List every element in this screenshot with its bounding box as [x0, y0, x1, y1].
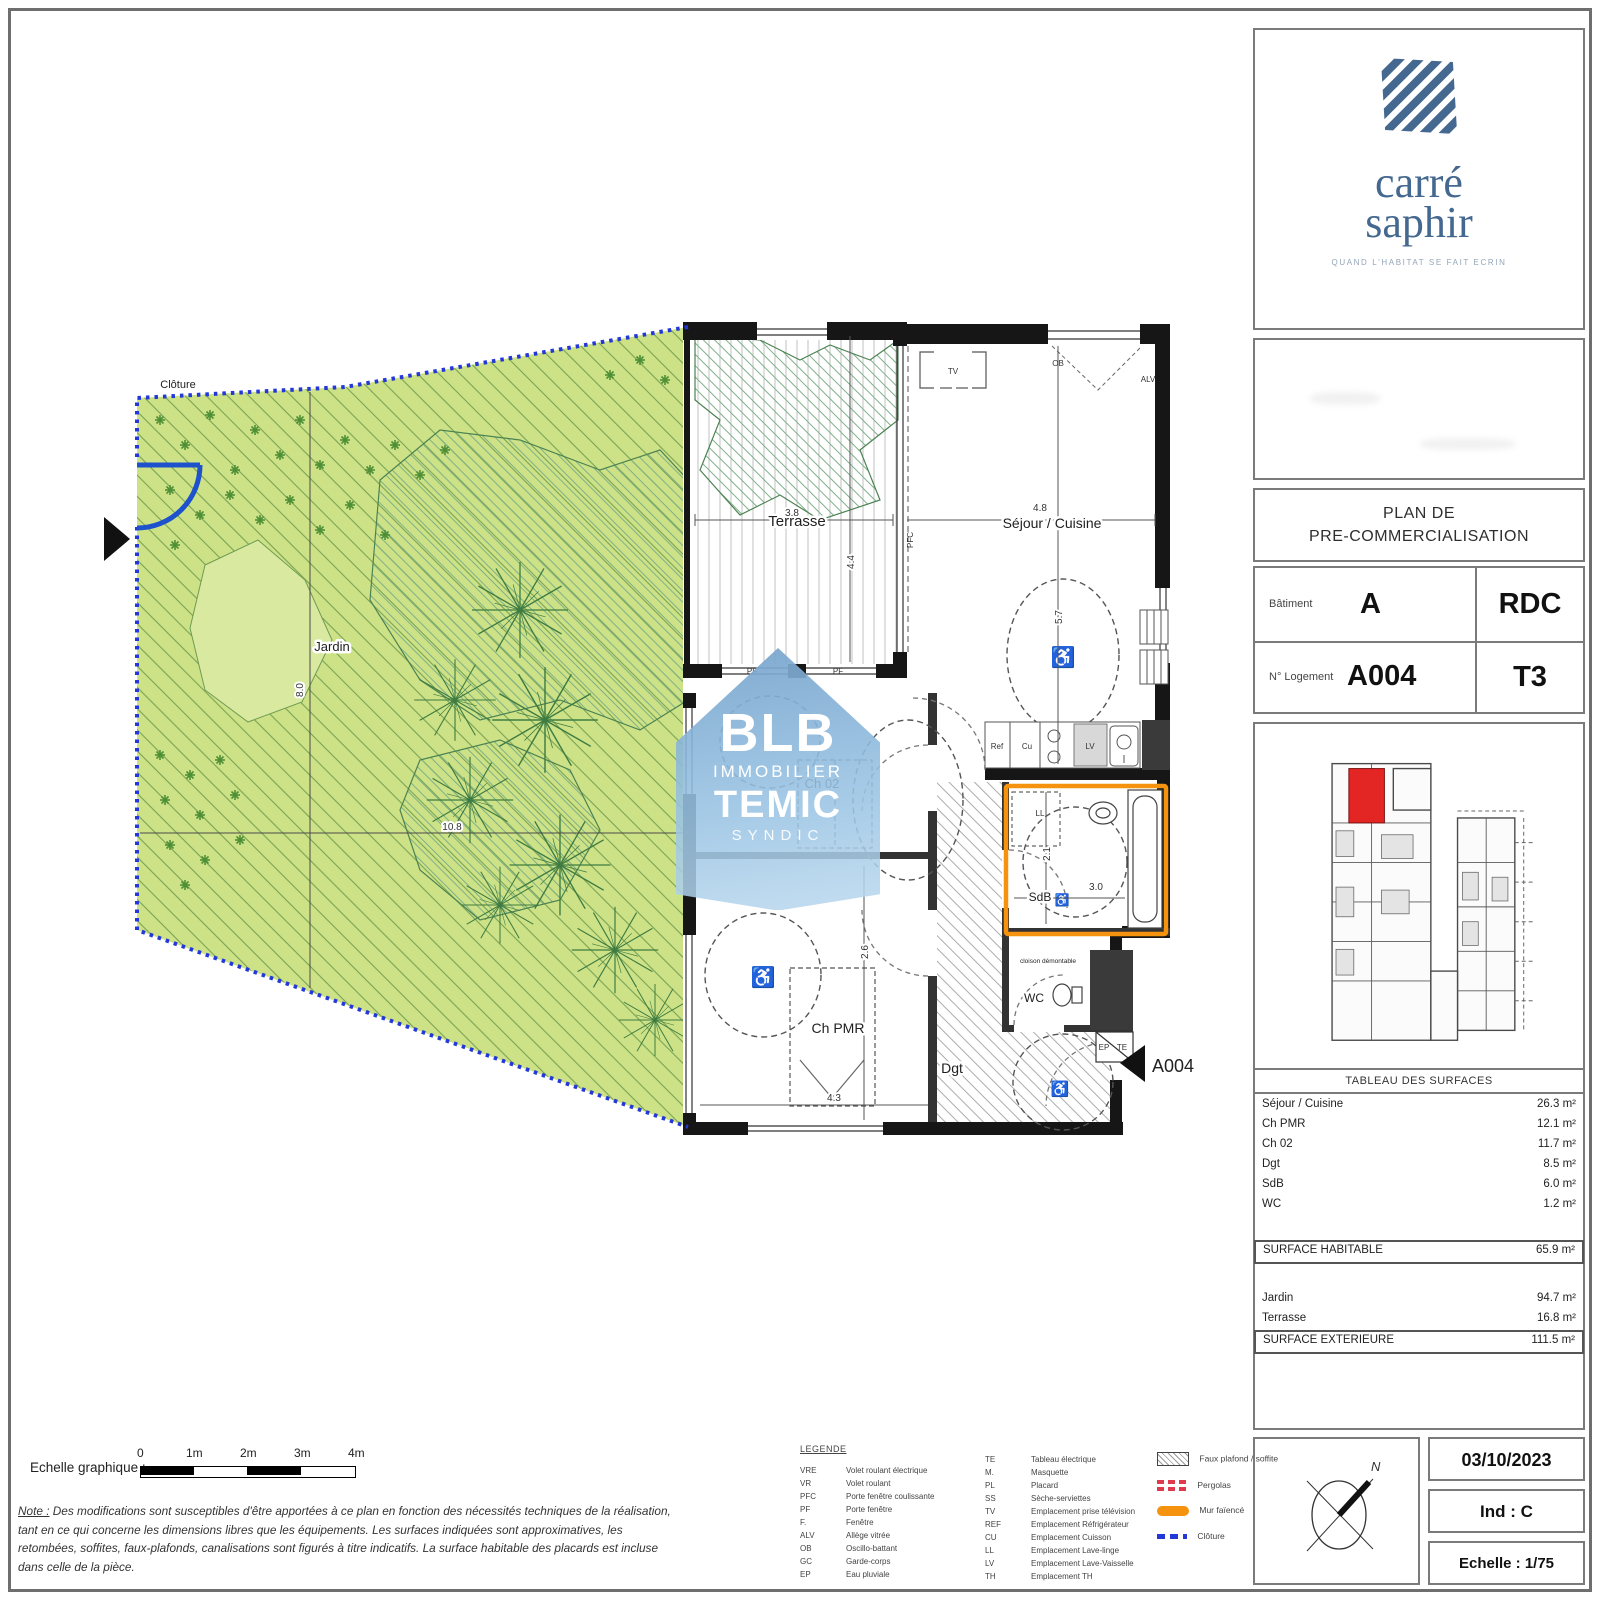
legend-label: Emplacement TH: [1031, 1572, 1093, 1581]
label-jardin: Jardin: [314, 639, 349, 654]
legend-abbr: EP: [800, 1570, 846, 1579]
legend-row: VREVolet roulant électrique: [800, 1466, 927, 1475]
fixture-pf-2: PF: [833, 667, 843, 676]
faded-text: [1310, 392, 1380, 405]
pergolas-icon: [1157, 1480, 1187, 1491]
scalebar-tick: 3m: [294, 1446, 311, 1460]
svg-text:♿: ♿: [1055, 893, 1070, 907]
note-body: Des modifications sont susceptibles d'êt…: [18, 1504, 671, 1574]
watermark-line: BLB: [676, 706, 880, 760]
legend-abbr: LV: [985, 1559, 1031, 1568]
svg-text:♿: ♿: [751, 965, 776, 989]
row-value: 12.1 m²: [1537, 1118, 1576, 1130]
legend-row: LVEmplacement Lave-Vaisselle: [985, 1559, 1134, 1568]
legend-label: Sèche-serviettes: [1031, 1494, 1091, 1503]
watermark-line: IMMOBILIER: [676, 762, 880, 782]
legend-label: Volet roulant électrique: [846, 1466, 927, 1475]
fixture-ob: OB: [1052, 359, 1064, 368]
surface-table: TABLEAU DES SURFACES Séjour / Cuisine26.…: [1253, 1068, 1585, 1430]
table-row: SdB6.0 m²: [1255, 1176, 1583, 1196]
compass-icon: N: [1255, 1439, 1418, 1583]
date-value: 03/10/2023: [1461, 1450, 1551, 1470]
watermark-line: TEMIC: [676, 786, 880, 824]
surface-habitable-row: SURFACE HABITABLE65.9 m²: [1254, 1240, 1584, 1264]
legend-row: PLPlacard: [985, 1481, 1058, 1490]
terrace-canopy: [695, 335, 898, 520]
legend-abbr: M.: [985, 1468, 1031, 1477]
row-label: Dgt: [1262, 1158, 1280, 1170]
legend-row: F.Fenêtre: [800, 1518, 874, 1527]
legend-label: Garde-corps: [846, 1557, 890, 1566]
floor-plan: ♿ ♿ ♿ ♿: [0, 0, 1245, 1600]
legend-abbr: PFC: [800, 1492, 846, 1501]
row-label: SdB: [1262, 1178, 1284, 1190]
address-block: [1253, 338, 1585, 480]
surface-table-title: TABLEAU DES SURFACES: [1255, 1070, 1583, 1094]
legend-label: Faux plafond / soffite: [1199, 1453, 1278, 1463]
label-cloture: Clôture: [160, 379, 195, 391]
surface-exterieure-row: SURFACE EXTERIEURE111.5 m²: [1254, 1330, 1584, 1354]
logo-word-top: carré: [1255, 163, 1583, 203]
legend-row: TVEmplacement prise télévision: [985, 1507, 1135, 1516]
note-text: Note : Des modifications sont susceptibl…: [18, 1502, 673, 1577]
legend-abbr: F.: [800, 1518, 846, 1527]
legend-row: LLEmplacement Lave-linge: [985, 1546, 1119, 1555]
legend-symbol-row: Faux plafond / soffite: [1157, 1452, 1278, 1466]
scale-stamp: Echelle : 1/75: [1428, 1541, 1585, 1585]
table-row: Ch 0211.7 m²: [1255, 1136, 1583, 1156]
legend-label: Tableau électrique: [1031, 1455, 1096, 1464]
dim-jardin-h: 8.0: [295, 683, 306, 697]
legend-abbr: LL: [985, 1546, 1031, 1555]
scale-value: Echelle : 1/75: [1459, 1555, 1554, 1572]
label-dgt: Dgt: [941, 1060, 963, 1076]
dim-jardin-w: 10.8: [442, 822, 462, 833]
fixture-te: TE: [1117, 1043, 1127, 1052]
legend-row: CUEmplacement Cuisson: [985, 1533, 1111, 1542]
row-value: 65.9 m²: [1536, 1244, 1575, 1256]
table-row: Jardin94.7 m²: [1255, 1290, 1583, 1310]
fixture-alv: ALV: [1141, 375, 1156, 384]
unit-label: A004: [1152, 1056, 1194, 1076]
dim-terrasse-h: 4.4: [846, 555, 857, 569]
row-value: 6.0 m²: [1543, 1178, 1576, 1190]
legend-row: TETableau électrique: [985, 1455, 1096, 1464]
table-row: WC1.2 m²: [1255, 1196, 1583, 1216]
table-row: Ch PMR12.1 m²: [1255, 1116, 1583, 1136]
fixture-lv: LV: [1085, 742, 1095, 751]
legend-title: LEGENDE: [800, 1444, 847, 1454]
row-label: Ch 02: [1262, 1138, 1293, 1150]
dim-sejour-h: 5.7: [1054, 610, 1065, 624]
index-value: Ind : C: [1480, 1502, 1533, 1521]
legend-symbol-row: Clôture: [1157, 1531, 1225, 1541]
legend-abbr: SS: [985, 1494, 1031, 1503]
legend-abbr: GC: [800, 1557, 846, 1566]
row-label: Ch PMR: [1262, 1118, 1305, 1130]
legend-abbr: PF: [800, 1505, 846, 1514]
legend-row: EPEau pluviale: [800, 1570, 890, 1579]
row-value: 1.2 m²: [1543, 1198, 1576, 1210]
batiment-label: Bâtiment: [1269, 598, 1312, 610]
row-value: 16.8 m²: [1537, 1312, 1576, 1324]
row-value: 111.5 m²: [1531, 1334, 1575, 1346]
fixture-tv: TV: [948, 367, 959, 376]
legend-abbr: ALV: [800, 1531, 846, 1540]
table-row: Dgt8.5 m²: [1255, 1156, 1583, 1176]
legend-row: M.Masquette: [985, 1468, 1068, 1477]
label-sdb: SdB: [1029, 890, 1052, 904]
fixture-pfc: PFC: [906, 532, 915, 548]
legend-label: Oscillo-battant: [846, 1544, 897, 1553]
dim-sejour-w: 4.8: [1033, 503, 1047, 514]
fixture-ref: Ref: [991, 742, 1004, 751]
label-chpmr: Ch PMR: [812, 1020, 865, 1036]
svg-text:♿: ♿: [1051, 645, 1076, 669]
legend-row: VRVolet roulant: [800, 1479, 890, 1488]
row-value: 94.7 m²: [1537, 1292, 1576, 1304]
legend-row: PFCPorte fenêtre coulissante: [800, 1492, 935, 1501]
fixture-ll: LL: [1036, 809, 1045, 818]
legend-label: Emplacement Cuisson: [1031, 1533, 1111, 1542]
legend-label: Emplacement Lave-Vaisselle: [1031, 1559, 1134, 1568]
legend-row: GCGarde-corps: [800, 1557, 890, 1566]
legend-abbr: PL: [985, 1481, 1031, 1490]
logo-diamond-icon: [1255, 30, 1583, 150]
legend-abbr: CU: [985, 1533, 1031, 1542]
legend-abbr: VR: [800, 1479, 846, 1488]
row-label: Séjour / Cuisine: [1262, 1098, 1343, 1110]
legend-label: Mur faïencé: [1199, 1505, 1244, 1515]
legend-label: Placard: [1031, 1481, 1058, 1490]
svg-text:♿: ♿: [1051, 1080, 1070, 1098]
scalebar-tick: 4m: [348, 1446, 365, 1460]
legend-label: Masquette: [1031, 1468, 1068, 1477]
scalebar-tick: 2m: [240, 1446, 257, 1460]
logo-block: carré saphir QUAND L'HABITAT SE FAIT ECR…: [1253, 28, 1585, 330]
mur-faience-icon: [1157, 1506, 1189, 1516]
date-stamp: 03/10/2023: [1428, 1437, 1585, 1481]
legend-label: Porte fenêtre coulissante: [846, 1492, 935, 1501]
highlighted-unit: [1349, 769, 1385, 823]
legend-abbr: OB: [800, 1544, 846, 1553]
note-label: Note :: [18, 1504, 49, 1518]
fixture-cu: Cu: [1022, 742, 1032, 751]
legend-label: Allège vitrée: [846, 1531, 890, 1540]
logo-word-bottom: saphir: [1255, 203, 1583, 243]
plan-title-line2: PRE-COMMERCIALISATION: [1309, 528, 1529, 545]
row-value: 26.3 m²: [1537, 1098, 1576, 1110]
cloture-icon: [1157, 1534, 1187, 1539]
dim-terrasse-w: 3.8: [785, 508, 799, 519]
legend-label: Emplacement Lave-linge: [1031, 1546, 1119, 1555]
row-label: Terrasse: [1262, 1312, 1306, 1324]
table-row: Séjour / Cuisine26.3 m²: [1255, 1096, 1583, 1116]
dim-sdb-h: 2.1: [1042, 847, 1053, 861]
logo-tagline: QUAND L'HABITAT SE FAIT ECRIN: [1255, 258, 1583, 267]
legend-label: Emplacement Réfrigérateur: [1031, 1520, 1129, 1529]
dim-chpmr-w: 4.3: [827, 1093, 841, 1104]
legend-symbol-row: Pergolas: [1157, 1480, 1231, 1491]
label-sejour: Séjour / Cuisine: [1003, 515, 1102, 531]
legend-row: ALVAllège vitrée: [800, 1531, 890, 1540]
graphic-scalebar: [140, 1466, 356, 1478]
plan-title-line1: PLAN DE: [1383, 505, 1455, 522]
legend-abbr: TE: [985, 1455, 1031, 1464]
batiment-value: A: [1360, 588, 1381, 621]
legend-row: THEmplacement TH: [985, 1572, 1093, 1581]
label-cloison: cloison démontable: [1020, 958, 1076, 965]
logement-value: A004: [1347, 660, 1416, 693]
legend-row: PFPorte fenêtre: [800, 1505, 892, 1514]
dim-chpmr-h: 2.6: [860, 945, 871, 959]
faux-plafond-icon: [1157, 1452, 1189, 1466]
scalebar-label: Echelle graphique :: [30, 1460, 146, 1475]
row-value: 11.7 m²: [1538, 1138, 1576, 1150]
index-stamp: Ind : C: [1428, 1489, 1585, 1533]
legend-abbr: TH: [985, 1572, 1031, 1581]
legend-row: OBOscillo-battant: [800, 1544, 897, 1553]
fixture-ep: EP: [1099, 1043, 1110, 1052]
legend-row: SSSèche-serviettes: [985, 1494, 1091, 1503]
legend-abbr: TV: [985, 1507, 1031, 1516]
key-plan-drawing: [1255, 724, 1583, 1070]
legend-label: Pergolas: [1197, 1480, 1231, 1490]
legend-label: Eau pluviale: [846, 1570, 890, 1579]
niveau-value: RDC: [1499, 588, 1562, 620]
legend-abbr: REF: [985, 1520, 1031, 1529]
row-label: Jardin: [1262, 1292, 1293, 1304]
garden-area: [137, 327, 691, 1127]
legend-label: Volet roulant: [846, 1479, 890, 1488]
faded-text: [1420, 438, 1515, 450]
legend-label: Clôture: [1197, 1531, 1224, 1541]
legend-abbr: VRE: [800, 1466, 846, 1475]
legend-label: Fenêtre: [846, 1518, 874, 1527]
scalebar-tick: 0: [137, 1446, 144, 1460]
scalebar-tick: 1m: [186, 1446, 203, 1460]
plan-title-block: PLAN DE PRE-COMMERCIALISATION: [1253, 488, 1585, 562]
legend-label: Emplacement prise télévision: [1031, 1507, 1135, 1516]
legend-row: REFEmplacement Réfrigérateur: [985, 1520, 1129, 1529]
watermark-line: SYNDIC: [676, 827, 880, 844]
type-value: T3: [1513, 661, 1547, 693]
row-label: SURFACE HABITABLE: [1263, 1244, 1383, 1256]
row-value: 8.5 m²: [1543, 1158, 1576, 1170]
legend-symbol-row: Mur faïencé: [1157, 1505, 1244, 1516]
key-plan: [1253, 722, 1585, 1072]
dim-sdb-w: 3.0: [1089, 882, 1103, 893]
plan-sheet: ♿ ♿ ♿ ♿: [0, 0, 1600, 1600]
logement-label: N° Logement: [1269, 671, 1333, 683]
row-label: SURFACE EXTERIEURE: [1263, 1334, 1394, 1346]
unit-info-table: Bâtiment A RDC N° Logement A004 T3: [1253, 566, 1585, 714]
north-entry-arrow: [104, 517, 130, 561]
legend-label: Porte fenêtre: [846, 1505, 892, 1514]
label-wc: WC: [1024, 991, 1044, 1005]
north-label: N: [1371, 1459, 1381, 1474]
table-row: Terrasse16.8 m²: [1255, 1310, 1583, 1330]
row-label: WC: [1262, 1198, 1281, 1210]
